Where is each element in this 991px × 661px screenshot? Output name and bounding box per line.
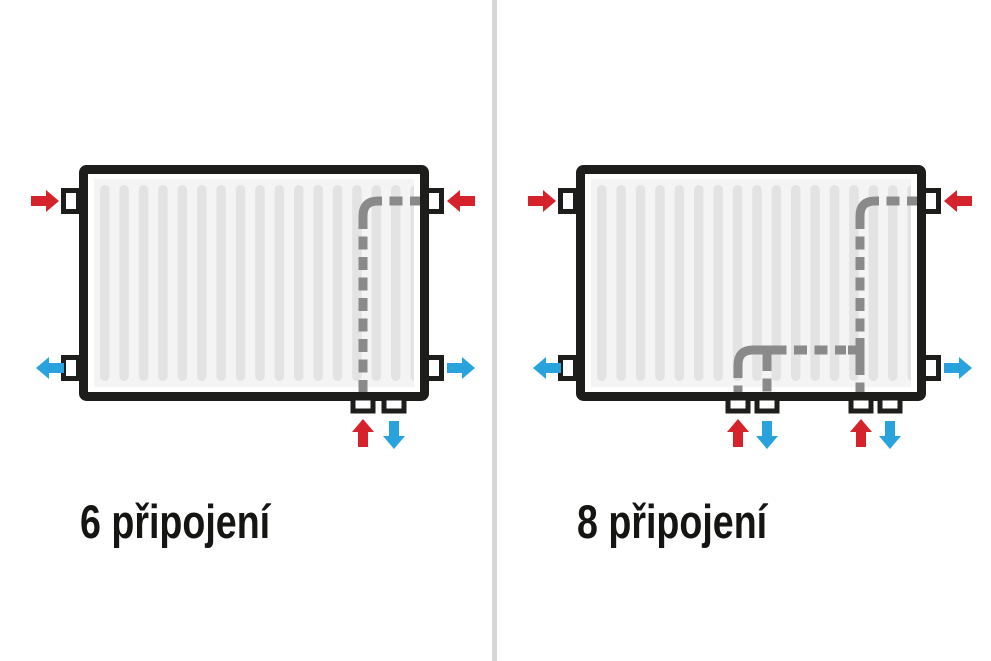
connection-stub [64,358,79,379]
connection-stub [728,398,748,411]
inlet-arrow-icon [944,190,972,212]
outlet-arrow-icon [944,357,972,379]
outlet-arrow-icon [533,357,561,379]
inlet-arrow-icon [528,190,556,212]
inlet-arrow-icon [727,419,749,447]
connection-stub [880,398,900,411]
connection-stub [427,191,442,212]
outlet-arrow-icon [447,357,475,379]
radiators-diagram [0,0,991,661]
inlet-arrow-icon [850,419,872,447]
outlet-arrow-icon [756,421,778,449]
inlet-arrow-icon [352,419,374,447]
connection-stub [924,191,939,212]
connection-stub [64,191,79,212]
panel-label-8-connections: 8 připojení [577,498,767,545]
outlet-arrow-icon [879,421,901,449]
inlet-arrow-icon [31,190,59,212]
outlet-arrow-icon [383,421,405,449]
connection-stub [353,398,373,411]
inlet-arrow-icon [447,190,475,212]
connection-stub [561,191,576,212]
connection-stub [561,358,576,379]
connection-stub [851,398,871,411]
connection-stub [757,398,777,411]
connection-stub [384,398,404,411]
outlet-arrow-icon [36,357,64,379]
connection-stub [924,358,939,379]
panel-label-6-connections: 6 připojení [80,498,270,545]
radiator-8-connections [528,165,972,449]
connection-stub [427,358,442,379]
radiator-6-connections [31,165,475,449]
radiator-connections-infographic: 6 připojení 8 připojení [0,0,991,661]
